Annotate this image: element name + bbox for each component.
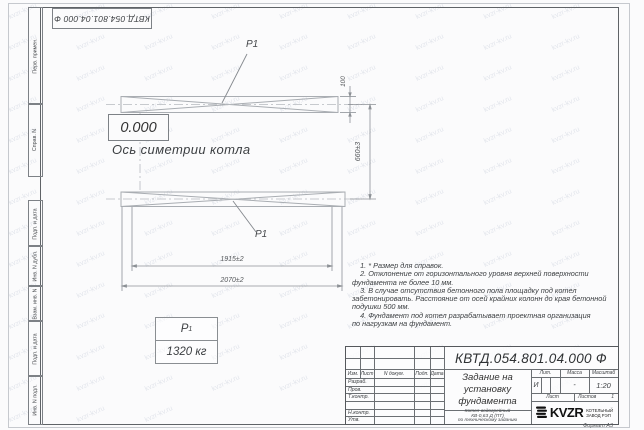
row-utv: Утв.: [348, 416, 374, 424]
row-razrab: Разраб.: [348, 378, 374, 386]
scale-value: 1:20: [589, 377, 618, 393]
dim-overall-length: 2070±2: [190, 277, 274, 284]
technical-notes: 1. * Размер для справок. 2. Отклонение о…: [352, 262, 644, 328]
load-table: P1 1320 кг: [155, 317, 218, 364]
elevation-mark: 0.000: [120, 120, 156, 136]
rotated-docnumber-stamp: КВТД.054.801.04.000 Ф: [52, 8, 152, 29]
doc-number: КВТД.054.801.04.000 Ф: [444, 347, 618, 369]
doc-title: Задание на установку фундамента: [444, 369, 531, 410]
doc-subtitle: Котел водогрейный КВ-0,63 Д (ПТ) по техн…: [444, 410, 531, 424]
title-block: Изм. Лист N докум. Подп. Дата Разраб. Пр…: [345, 346, 619, 425]
col-izm: Изм.: [346, 369, 360, 378]
drawing-sheet: kvzr-kv.rukvzr-kv.rukvzr-kv.rukvzr-kv.ru…: [0, 0, 644, 430]
load-symbol-sub: 1: [188, 326, 192, 333]
sidebar-label: Перв. примен.: [33, 38, 39, 73]
lit-value: И: [531, 377, 541, 393]
sheets-value: 1: [611, 394, 614, 400]
load-value-cell: 1320 кг: [156, 341, 217, 363]
sheet-label: Лист: [531, 393, 574, 401]
col-ndocum: N докум.: [374, 369, 414, 378]
dim-beam-spacing: 660±3: [350, 135, 368, 167]
lit-label: Лит.: [531, 369, 560, 377]
col-data: Дата: [430, 369, 444, 378]
scale-label: Масштаб: [589, 369, 618, 377]
sidebar-label: Справ. N: [33, 129, 39, 151]
position-label-top: P1: [246, 39, 258, 50]
format-note: Формат А3: [556, 423, 640, 429]
axis-caption: Ось симетрии котла: [112, 142, 250, 157]
load-symbol-cell: P1: [156, 318, 217, 341]
company-name: КОТЕЛЬНЫЙ ЗАВОД РЭП: [586, 408, 613, 418]
sidebar-cell-sprav-n: Справ. N: [28, 103, 43, 177]
sidebar-cell-inv-podl: Инв. N подл.: [28, 375, 43, 425]
dim-anchor-span: 1915±2: [190, 256, 274, 263]
sheets-label: Листов: [578, 394, 596, 400]
sidebar-label: Взам. инв. N: [33, 288, 39, 319]
rotated-docnumber-text: КВТД.054.801.04.000 Ф: [54, 14, 150, 24]
sidebar-label: Инв. N дубл.: [33, 251, 39, 282]
load-symbol: P: [181, 323, 189, 335]
col-podp: Подп.: [414, 369, 430, 378]
position-label-bottom: P1: [255, 229, 267, 240]
sidebar-label: Подп. и дата: [33, 208, 39, 239]
row-nkontr: Н.контр.: [348, 409, 374, 416]
sheets-cell: Листов 1: [574, 393, 618, 401]
sidebar-cell-podp-data-2: Подп. и дата: [28, 320, 43, 377]
sidebar-cell-inv-dubl: Инв. N дубл.: [28, 245, 43, 287]
sidebar-cell-podp-data-1: Подп. и дата: [28, 200, 43, 247]
col-list: Лист: [360, 369, 374, 378]
row-prov: Пров.: [348, 386, 374, 393]
sidebar-label: Подп. и дата: [33, 333, 39, 364]
coil-logo-icon: [536, 406, 547, 420]
sidebar-cell-perv-primen: Перв. примен.: [28, 7, 43, 105]
sidebar-cell-vzam-inv: Взам. инв. N: [28, 285, 43, 322]
row-tkontr: Т.контр.: [348, 393, 374, 401]
sidebar-label: Инв. N подл.: [33, 384, 39, 415]
elevation-mark-box: 0.000: [108, 114, 169, 141]
mass-value: -: [560, 377, 589, 393]
company-logo-area: KVZR КОТЕЛЬНЫЙ ЗАВОД РЭП: [531, 401, 618, 424]
dim-beam-height: 100: [334, 68, 352, 94]
row-empty: [348, 401, 374, 409]
mass-label: Масса: [560, 369, 589, 377]
logo-text: KVZR: [550, 405, 583, 420]
